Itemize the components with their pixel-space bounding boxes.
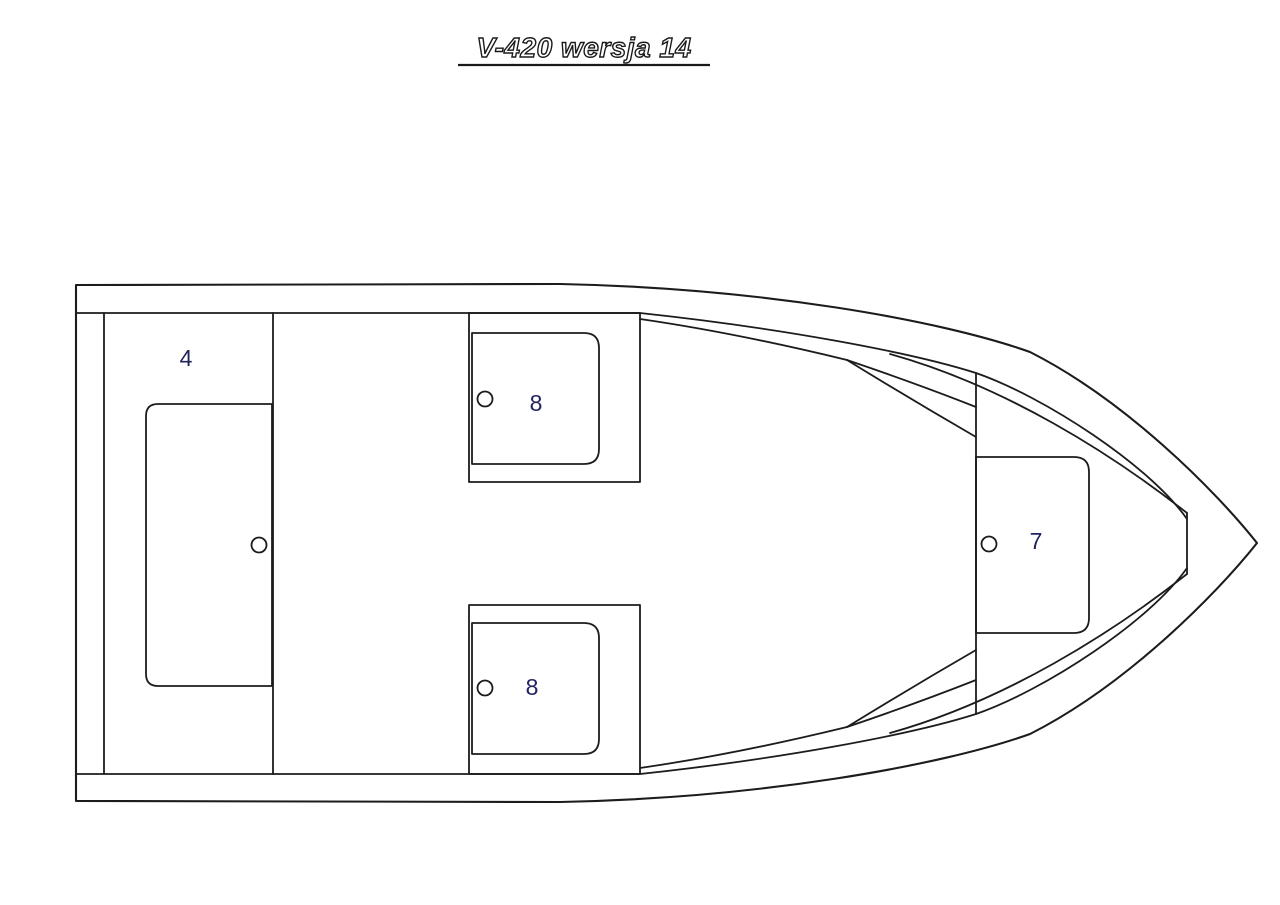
seat-upper-group [469,313,640,482]
stern-bench-group [104,313,273,774]
gunwale-inner-line-top [76,313,1187,519]
seat-upper-latch-circle [478,392,493,407]
chine-split-bottom-2 [847,650,976,727]
label-seat-lower: 8 [526,674,539,700]
gunwale-inner-line-bottom [76,568,1187,774]
seat-upper-box [469,313,640,482]
label-seat-upper: 8 [530,390,543,416]
seat-lower-latch-circle [478,681,493,696]
seat-lower-group [469,605,640,774]
sheer-double-line-top [890,354,1187,513]
label-stern-bench: 4 [180,345,193,371]
stern-hatch-latch-circle [252,538,267,553]
page: V-420 wersja 14 [0,0,1280,905]
page-title: V-420 wersja 14 [476,32,691,63]
seat-lower-box [469,605,640,774]
chine-split-top-2 [847,360,976,437]
sheer-double-line-bottom [890,574,1187,733]
label-bow-seat: 7 [1030,528,1043,554]
boat-floorplan-drawing: V-420 wersja 14 [0,0,1280,905]
bow-seat-latch-circle [982,537,997,552]
